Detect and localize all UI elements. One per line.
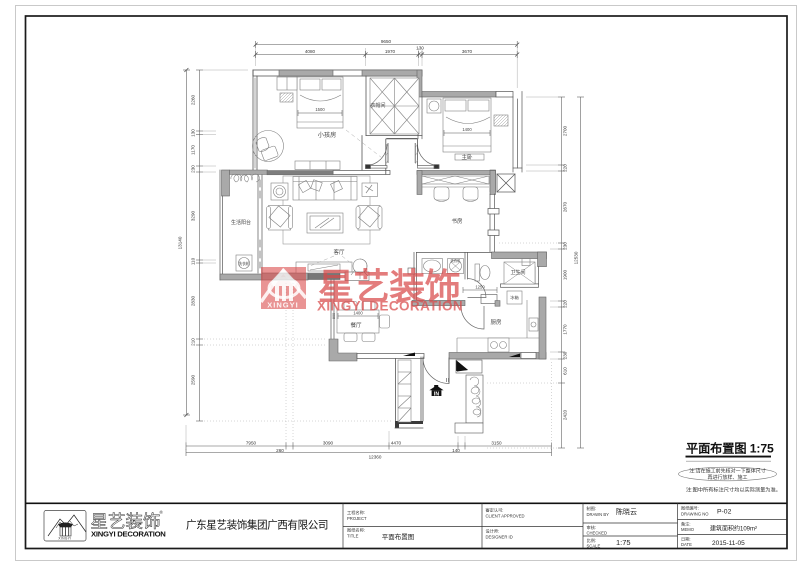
svg-text:1500: 1500: [315, 107, 325, 112]
svg-text:小孩房: 小孩房: [318, 131, 337, 139]
svg-text:800: 800: [332, 313, 336, 319]
svg-text:XINGYI: XINGYI: [267, 301, 298, 310]
svg-text:书房: 书房: [451, 217, 463, 225]
svg-text:230: 230: [563, 351, 568, 359]
svg-text:110: 110: [191, 257, 196, 265]
svg-text:610: 610: [563, 367, 568, 375]
svg-text:1770: 1770: [563, 324, 568, 335]
svg-text:卫生间: 卫生间: [510, 269, 525, 276]
svg-text:XINGYI DECORATION: XINGYI DECORATION: [317, 299, 463, 314]
svg-text:TITLE: TITLE: [347, 534, 359, 539]
svg-text:2260: 2260: [191, 94, 196, 105]
svg-text:220: 220: [563, 164, 568, 172]
svg-text:3670: 3670: [462, 49, 473, 54]
svg-text:PROJECT: PROJECT: [347, 516, 367, 521]
svg-text:2420: 2420: [563, 409, 568, 420]
svg-text:平面布置图: 平面布置图: [382, 532, 415, 541]
svg-text:審定认可:: 審定认可:: [486, 507, 504, 514]
svg-text:陈晓云: 陈晓云: [616, 507, 637, 516]
svg-text:制图:: 制图:: [587, 505, 597, 512]
svg-text:工程名称:: 工程名称:: [347, 509, 365, 516]
svg-text:220: 220: [563, 300, 568, 308]
svg-text:洗衣机: 洗衣机: [238, 261, 250, 266]
svg-text:衣帽间: 衣帽间: [370, 102, 385, 109]
svg-text:3150: 3150: [491, 441, 502, 446]
svg-text:13140: 13140: [178, 236, 183, 249]
svg-text:230: 230: [191, 165, 196, 173]
svg-text:厨房: 厨房: [490, 318, 502, 326]
svg-text:130: 130: [416, 46, 424, 51]
svg-text:DATE: DATE: [681, 542, 692, 547]
svg-text:2670: 2670: [563, 201, 568, 212]
svg-text:SCALE: SCALE: [587, 544, 601, 549]
svg-text:设计师:: 设计师:: [486, 528, 500, 535]
svg-text:7950: 7950: [246, 441, 257, 446]
svg-text:3090: 3090: [323, 441, 334, 446]
svg-text:9650: 9650: [381, 39, 392, 44]
svg-text:1250: 1250: [475, 285, 485, 290]
svg-text:P-02: P-02: [717, 509, 732, 516]
svg-text:平面布置图 1:75: 平面布置图 1:75: [686, 441, 774, 456]
svg-text:1:75: 1:75: [616, 538, 631, 547]
svg-text:XINGYI DECORATION: XINGYI DECORATION: [91, 529, 166, 538]
svg-text:2830: 2830: [191, 295, 196, 306]
svg-text:再进行放样、施工: 再进行放样、施工: [707, 474, 747, 481]
svg-text:260: 260: [276, 448, 284, 453]
svg-text:图纸编号:: 图纸编号:: [681, 505, 699, 512]
svg-text:1970: 1970: [385, 49, 396, 54]
svg-text:注:请在施工前先核对一下整体尺寸: 注:请在施工前先核对一下整体尺寸: [689, 468, 765, 475]
svg-text:230: 230: [563, 242, 568, 250]
svg-text:建筑面积约109m²: 建筑面积约109m²: [710, 525, 757, 533]
svg-text:2590: 2590: [191, 374, 196, 385]
svg-text:1900: 1900: [563, 269, 568, 280]
svg-text:CLIENT APPROVED: CLIENT APPROVED: [486, 514, 525, 519]
svg-text:2015-11-05: 2015-11-05: [712, 540, 745, 547]
svg-text:DRAWING NO: DRAWING NO: [681, 512, 709, 517]
svg-text:IN: IN: [434, 391, 439, 397]
svg-text:12530: 12530: [574, 251, 579, 264]
svg-text:140: 140: [452, 448, 460, 453]
svg-text:客厅: 客厅: [333, 248, 345, 256]
svg-text:4080: 4080: [305, 49, 316, 54]
svg-text:2700: 2700: [563, 125, 568, 136]
svg-text:DRAWN BY: DRAWN BY: [587, 512, 610, 517]
svg-text:CHECKED: CHECKED: [587, 531, 607, 536]
svg-text:4470: 4470: [391, 441, 402, 446]
svg-text:1400: 1400: [462, 127, 472, 132]
svg-text:餐厅: 餐厅: [350, 321, 362, 329]
svg-text:3290: 3290: [191, 210, 196, 221]
svg-text:洗衣机: 洗衣机: [450, 258, 461, 263]
svg-text:广东星艺装饰集团广西有限公司: 广东星艺装饰集团广西有限公司: [186, 519, 328, 532]
svg-text:冰箱: 冰箱: [510, 294, 518, 301]
svg-text:图纸名称:: 图纸名称:: [347, 527, 365, 534]
svg-text:210: 210: [191, 338, 196, 346]
svg-text:1170: 1170: [191, 145, 196, 155]
svg-text:注:图中所有标注尺寸均以实际测量为准。: 注:图中所有标注尺寸均以实际测量为准。: [686, 486, 781, 494]
svg-text:DESIGNER ID: DESIGNER ID: [486, 535, 513, 540]
svg-text:XINGYI: XINGYI: [58, 537, 71, 541]
svg-text:生活阳台: 生活阳台: [231, 219, 251, 226]
svg-text:主卧: 主卧: [461, 153, 473, 161]
svg-text:12360: 12360: [369, 455, 382, 460]
svg-text:130: 130: [191, 129, 196, 137]
svg-text:MEMO: MEMO: [681, 527, 695, 532]
